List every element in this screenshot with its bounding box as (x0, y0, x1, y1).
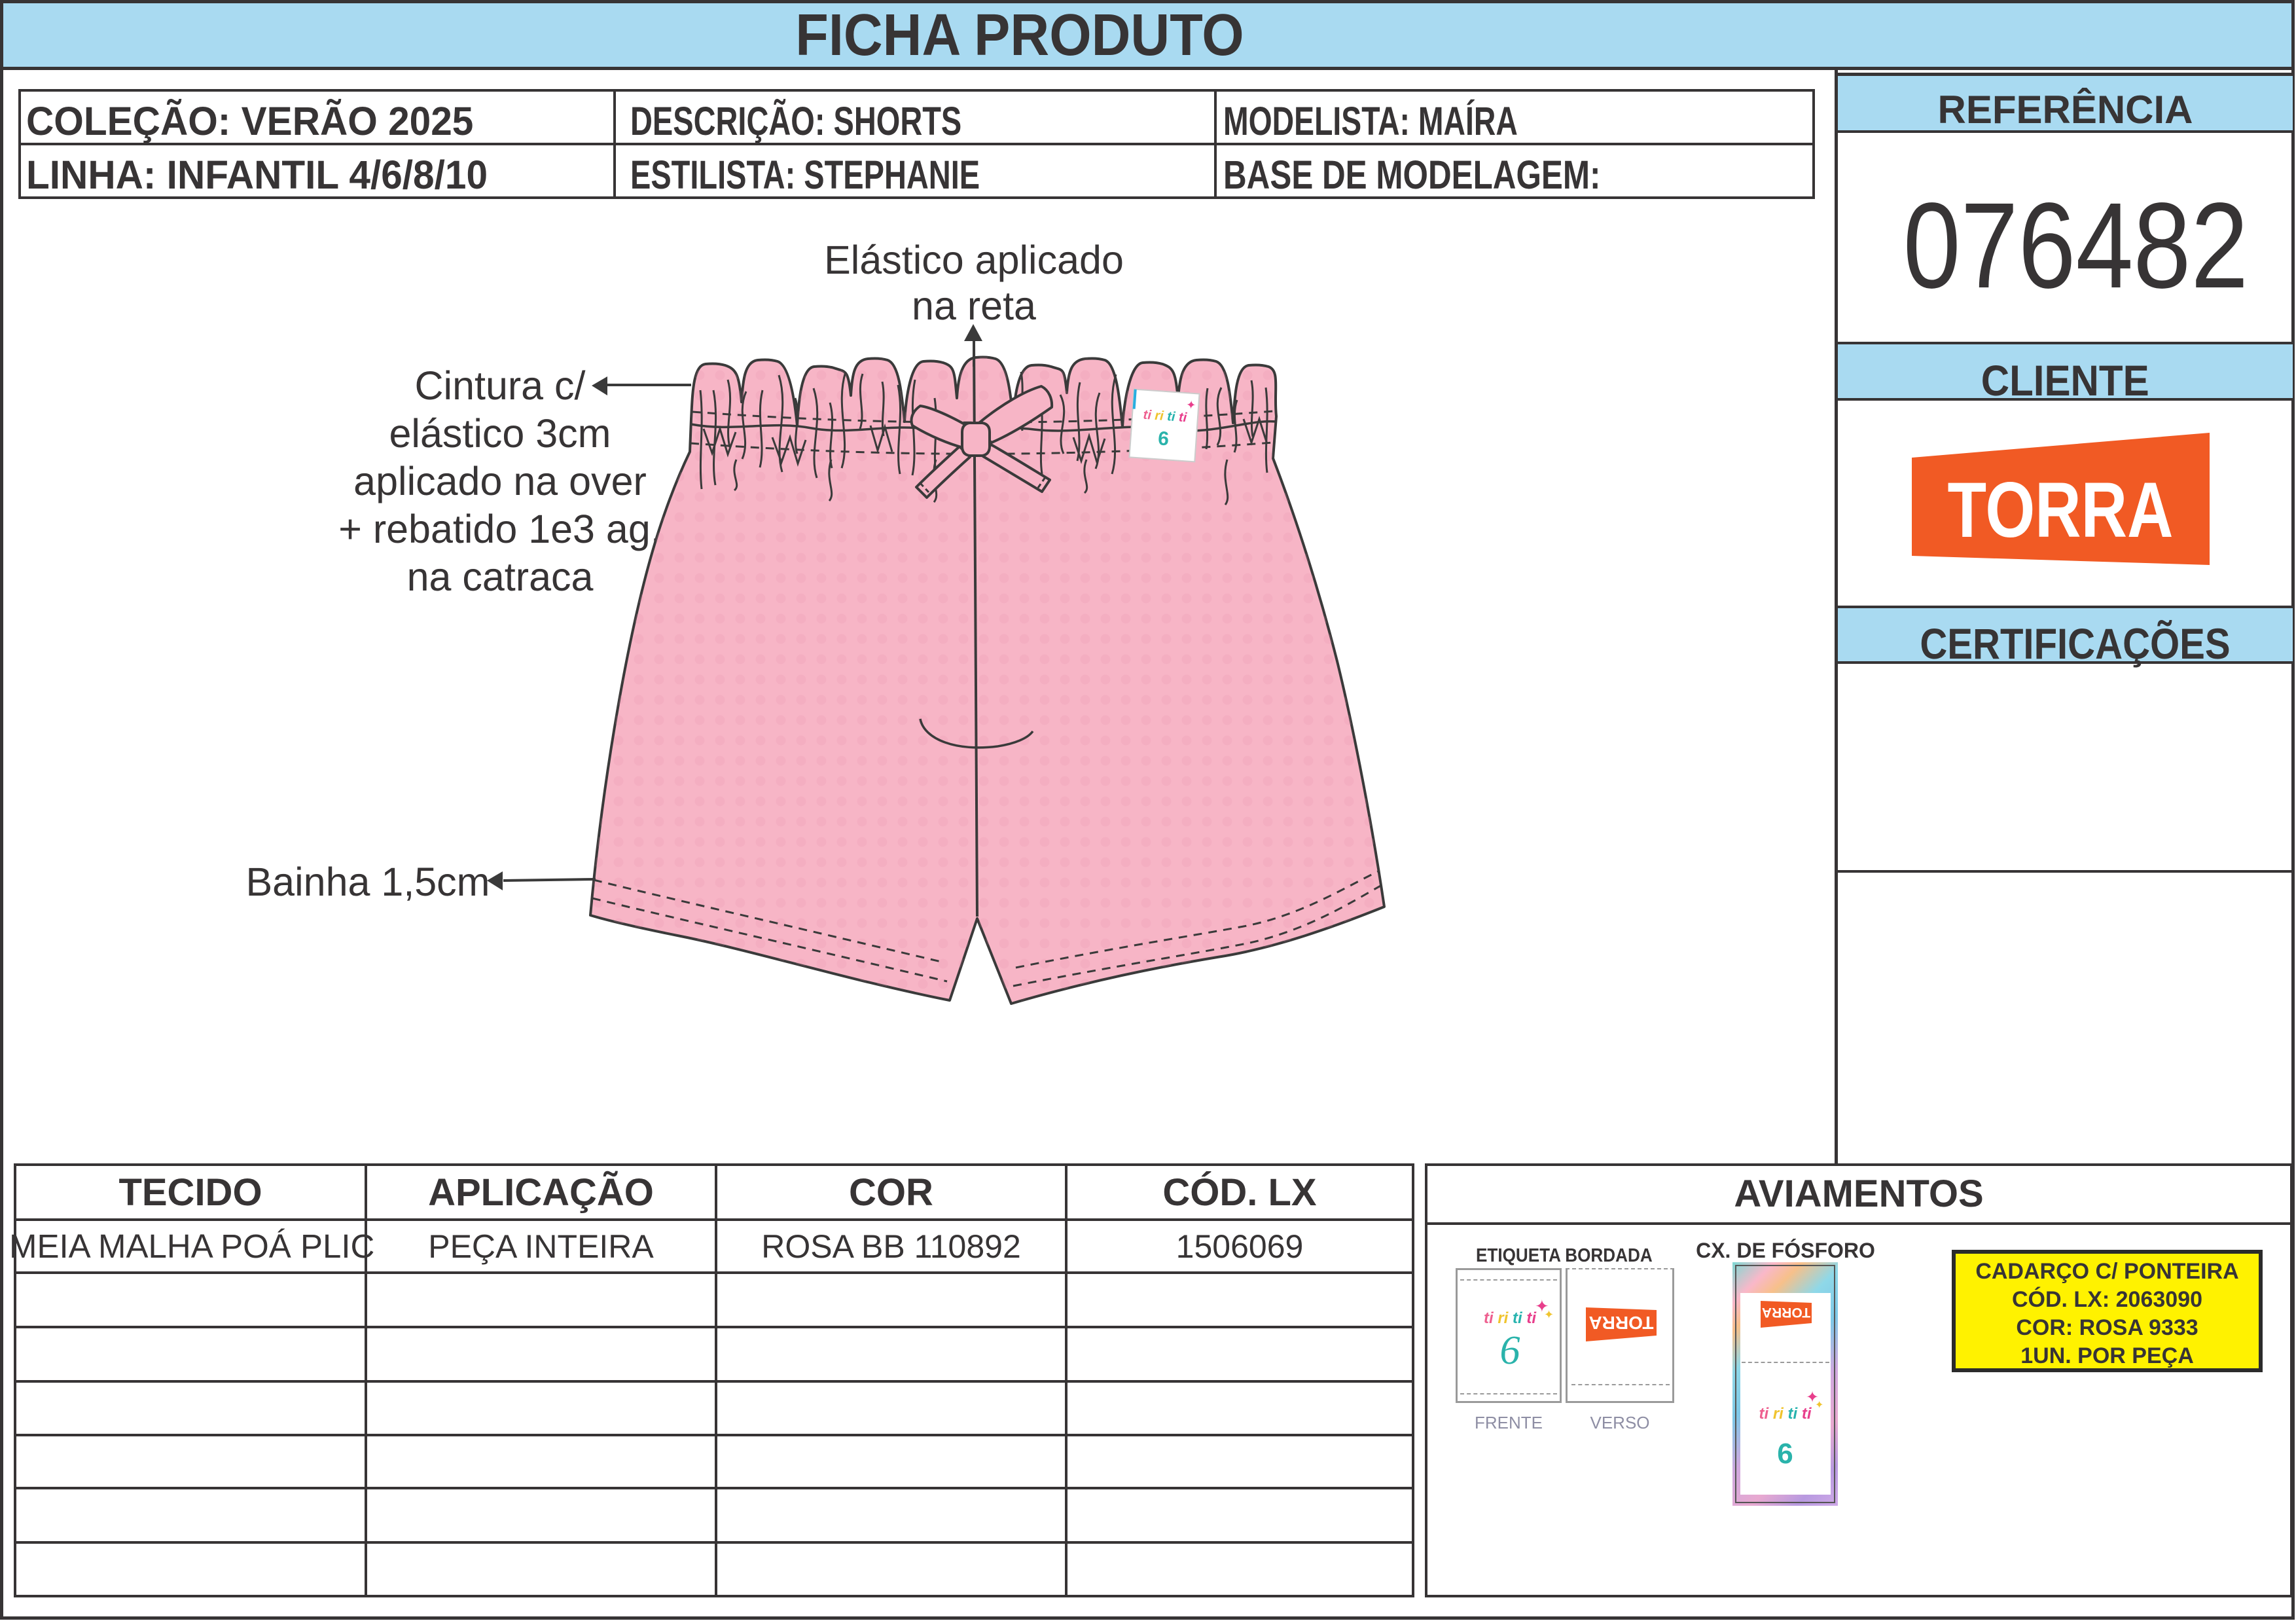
svg-text:6: 6 (1157, 428, 1170, 450)
svg-text:TORRA: TORRA (1762, 1305, 1810, 1320)
svg-text:✦: ✦ (1186, 398, 1196, 412)
svg-text:TORRA: TORRA (1948, 466, 2174, 554)
svg-text:TORRA: TORRA (1588, 1313, 1653, 1333)
svg-text:ti ri ti ti: ti ri ti ti (1143, 408, 1188, 426)
